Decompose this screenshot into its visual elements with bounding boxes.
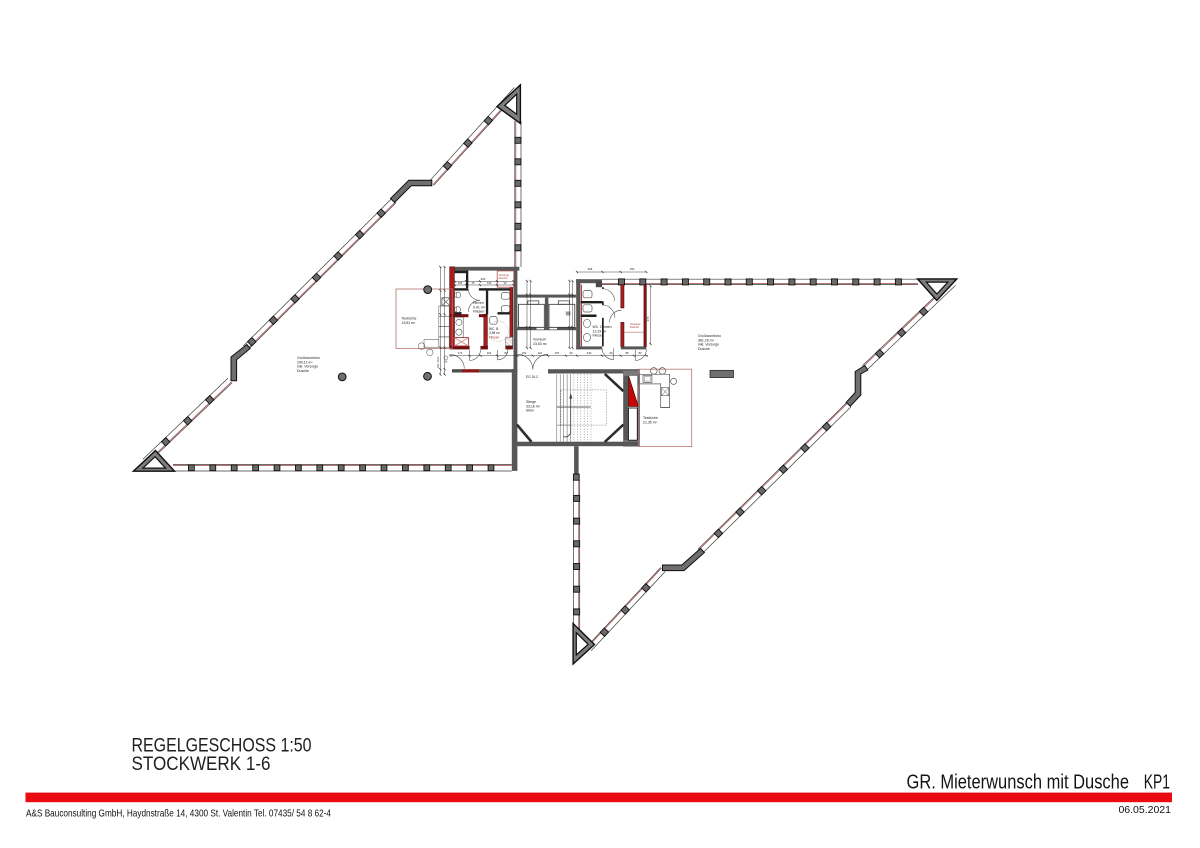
- svg-text:06.05.2021: 06.05.2021: [1118, 804, 1171, 816]
- svg-text:STOCKWERK 1-6: STOCKWERK 1-6: [132, 753, 271, 775]
- svg-text:Dusche: Dusche: [698, 347, 710, 351]
- svg-text:21,35 m²: 21,35 m²: [643, 420, 658, 424]
- svg-text:Dusche: Dusche: [630, 325, 639, 329]
- svg-text:157: 157: [555, 351, 560, 355]
- svg-text:172: 172: [458, 351, 463, 355]
- svg-text:130: 130: [487, 281, 492, 285]
- svg-text:400: 400: [481, 277, 486, 281]
- svg-text:115: 115: [487, 351, 492, 355]
- svg-text:150: 150: [630, 267, 635, 271]
- svg-text:23,63 m²: 23,63 m²: [533, 342, 548, 346]
- svg-text:46: 46: [609, 351, 613, 355]
- svg-text:Stein: Stein: [526, 409, 534, 413]
- svg-text:A&S Bauconsulting GmbH, Haydns: A&S Bauconsulting GmbH, Haydnstraße 14, …: [26, 808, 331, 819]
- svg-text:Dusche: Dusche: [297, 369, 309, 373]
- svg-text:30: 30: [569, 351, 573, 355]
- svg-text:152: 152: [522, 351, 527, 355]
- svg-text:Fliesen: Fliesen: [489, 335, 500, 339]
- svg-text:EG 16-C: EG 16-C: [526, 375, 539, 379]
- svg-text:15,81 m²: 15,81 m²: [402, 321, 417, 325]
- svg-text:KP1: KP1: [1144, 771, 1170, 793]
- svg-text:Dusche: Dusche: [499, 276, 508, 280]
- svg-text:↓: ↓: [632, 386, 634, 391]
- svg-text:80: 80: [638, 351, 642, 355]
- svg-text:235: 235: [458, 281, 463, 285]
- svg-text:Fliesen: Fliesen: [593, 334, 604, 338]
- svg-text:80: 80: [504, 351, 508, 355]
- svg-text:Fliesen: Fliesen: [473, 310, 484, 314]
- svg-text:GR. Mieterwunsch mit Dusche: GR. Mieterwunsch mit Dusche: [907, 771, 1130, 793]
- svg-text:240: 240: [587, 351, 592, 355]
- svg-text:30: 30: [445, 361, 448, 364]
- svg-text:EG 16-C: EG 16-C: [436, 356, 440, 367]
- svg-text:306: 306: [588, 267, 593, 271]
- svg-text:370: 370: [646, 316, 650, 321]
- svg-text:85: 85: [625, 351, 629, 355]
- svg-text:110: 110: [538, 351, 543, 355]
